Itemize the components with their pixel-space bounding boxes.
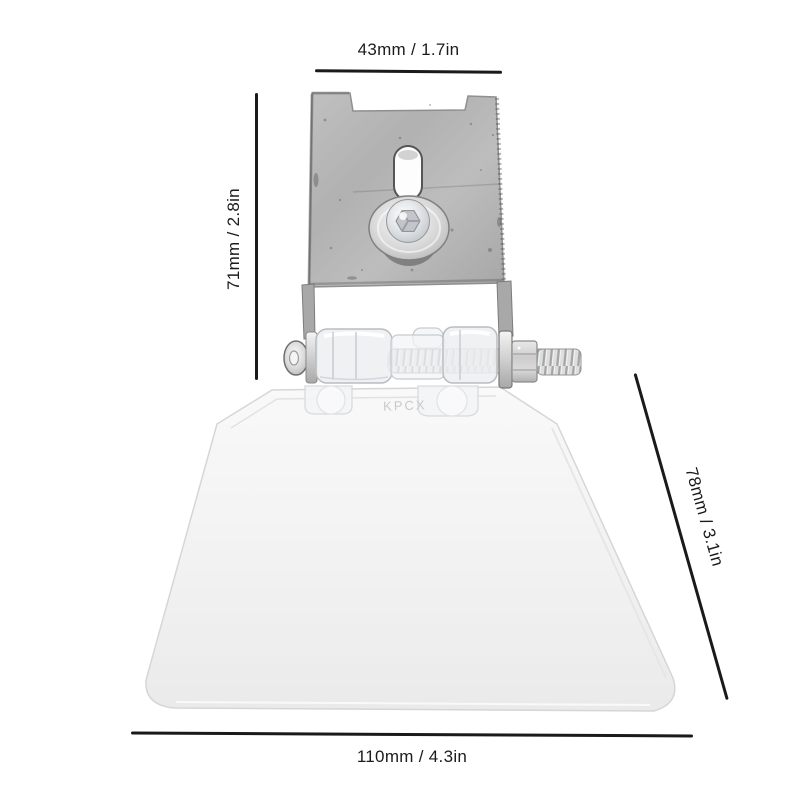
dimension-bottom-line — [131, 732, 693, 738]
dimension-left-line — [255, 93, 258, 380]
dimension-bottom-label: 110mm / 4.3in — [131, 747, 693, 767]
dimension-top-line — [315, 69, 502, 74]
dimension-left-label: 71mm / 2.8in — [224, 188, 244, 290]
hinge-right-flange — [499, 331, 512, 388]
threaded-bolt-end — [537, 349, 581, 375]
adjustment-slot — [394, 146, 422, 200]
product-photo: KPCX — [100, 80, 720, 730]
flap-tab-left — [305, 386, 352, 414]
product-image-canvas: KPCX — [0, 0, 800, 800]
hinge-knuckle-right — [443, 327, 497, 383]
hinge-knuckle-left — [316, 329, 392, 383]
hinge-left-screw — [284, 341, 308, 375]
flap-embossed-text: KPCX — [383, 397, 427, 414]
bracket-plate — [309, 93, 504, 287]
dimension-top-label: 43mm / 1.7in — [315, 40, 502, 60]
bracket-left-leg — [302, 284, 315, 339]
screw-head — [387, 200, 430, 243]
bracket-right-leg — [497, 281, 513, 337]
flap-tab-right — [418, 386, 478, 416]
hinge-knuckle-middle — [391, 328, 445, 379]
hex-nut — [512, 341, 537, 382]
clear-flap — [146, 387, 675, 711]
